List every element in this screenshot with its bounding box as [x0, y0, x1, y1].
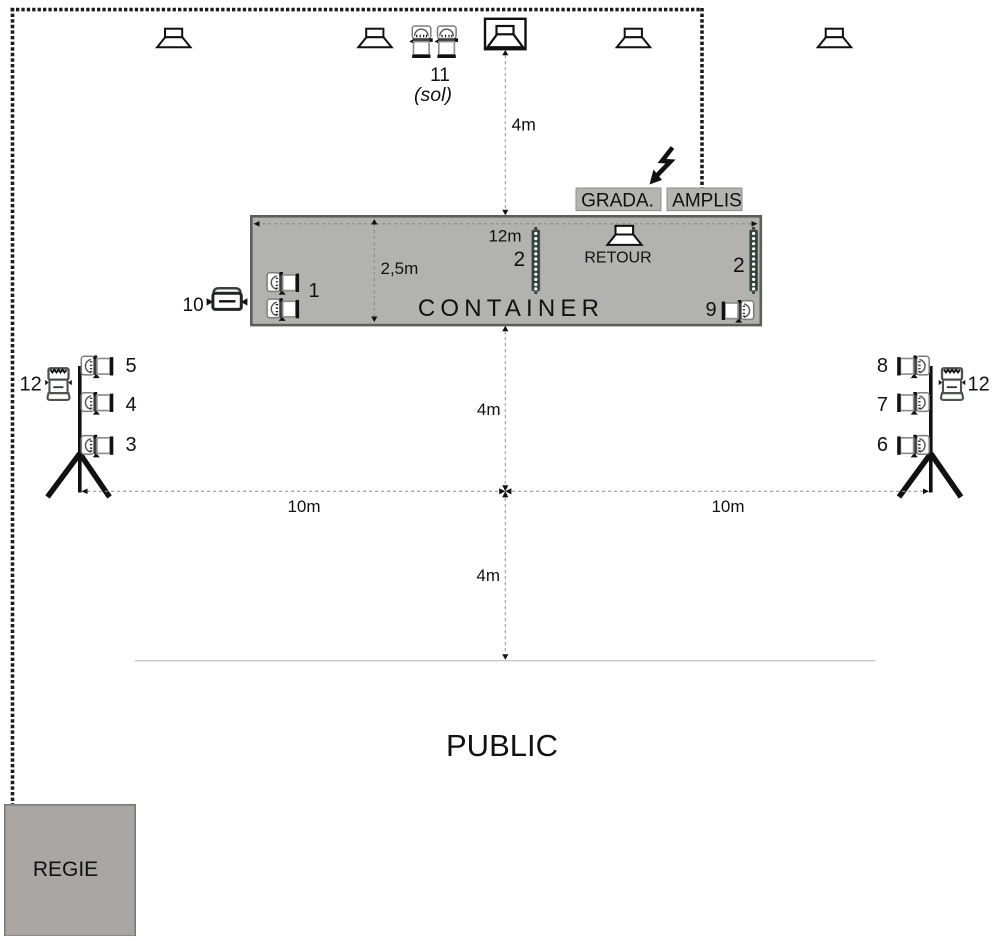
svg-text:3: 3: [126, 434, 137, 456]
svg-text:PUBLIC: PUBLIC: [446, 728, 558, 763]
svg-text:4m: 4m: [477, 400, 501, 419]
svg-text:12: 12: [968, 374, 990, 396]
svg-text:12: 12: [20, 374, 42, 396]
svg-text:10: 10: [183, 295, 204, 316]
svg-text:6: 6: [877, 434, 888, 456]
svg-text:11: 11: [430, 65, 450, 86]
svg-text:(sol): (sol): [414, 84, 452, 106]
svg-text:RETOUR: RETOUR: [584, 250, 651, 267]
svg-text:1: 1: [309, 280, 320, 302]
svg-text:4m: 4m: [476, 566, 500, 585]
svg-text:4m: 4m: [512, 115, 536, 135]
svg-text:7: 7: [877, 394, 888, 416]
svg-text:AMPLIS: AMPLIS: [672, 190, 742, 211]
svg-text:2: 2: [514, 248, 526, 271]
svg-text:2,5m: 2,5m: [381, 259, 419, 278]
svg-text:10m: 10m: [711, 497, 744, 516]
svg-text:12m: 12m: [488, 227, 521, 246]
svg-text:8: 8: [877, 355, 888, 377]
svg-text:9: 9: [706, 299, 717, 321]
svg-text:5: 5: [126, 355, 137, 377]
svg-text:2: 2: [733, 254, 745, 277]
svg-text:GRADA.: GRADA.: [581, 190, 654, 211]
svg-text:4: 4: [126, 394, 137, 416]
svg-text:REGIE: REGIE: [33, 858, 98, 881]
svg-text:10m: 10m: [287, 497, 320, 516]
svg-text:CONTAINER: CONTAINER: [418, 295, 604, 322]
